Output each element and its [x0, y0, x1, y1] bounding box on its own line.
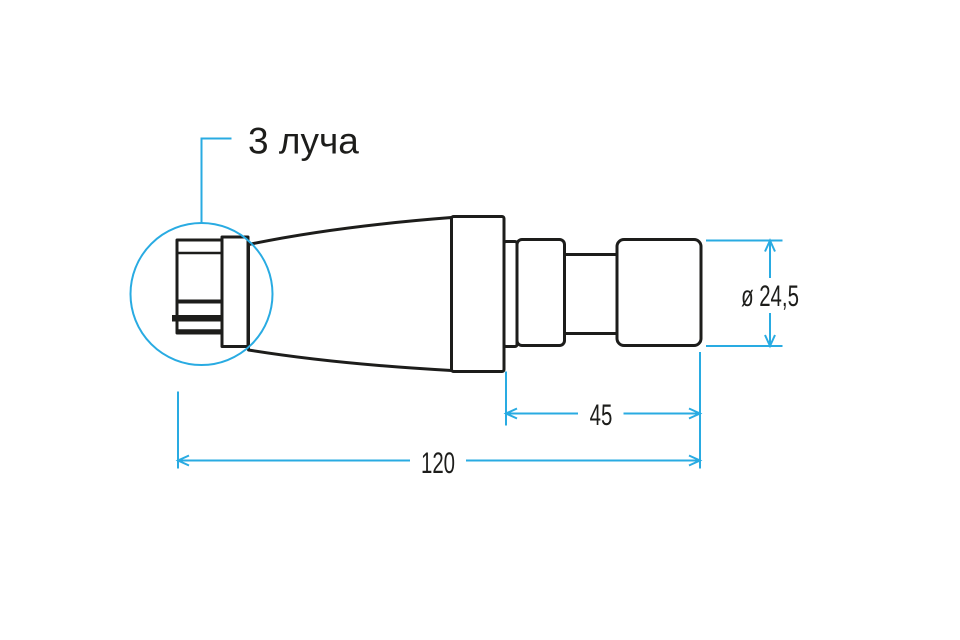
part-handle-taper	[249, 218, 452, 371]
total-length-value: 120	[421, 447, 455, 480]
part-step	[504, 242, 517, 347]
part-rim	[452, 217, 505, 372]
tip-ray-band	[172, 315, 221, 322]
diameter-value: ø 24,5	[741, 280, 799, 313]
part-outline	[172, 217, 701, 372]
part-tip	[172, 240, 222, 333]
part-ring	[517, 240, 565, 346]
technical-drawing-canvas: 3 луча ø 24,5 45 120	[0, 0, 960, 640]
part-neck	[565, 255, 618, 334]
part-end-cap	[617, 240, 701, 346]
tool-handle-drawing: 3 луча ø 24,5 45 120	[0, 0, 960, 640]
leader-line	[202, 139, 232, 223]
front-length-value: 45	[590, 399, 613, 432]
part-collar	[222, 237, 248, 347]
callout-label: 3 луча	[248, 121, 359, 162]
